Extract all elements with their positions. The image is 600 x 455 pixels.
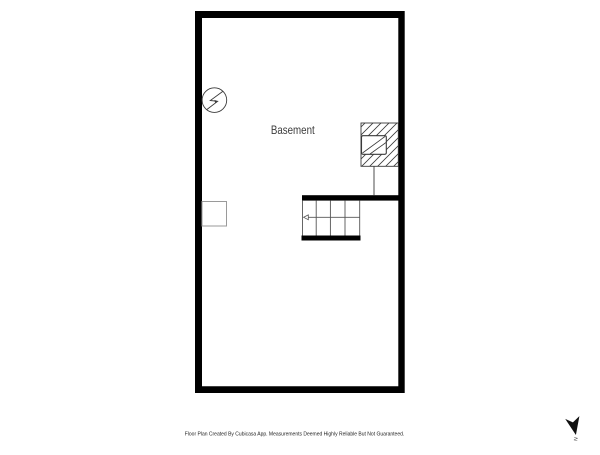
svg-text:Basement: Basement bbox=[271, 123, 315, 137]
svg-text:Floor Plan Created By Cubicasa: Floor Plan Created By Cubicasa App. Meas… bbox=[185, 432, 405, 438]
